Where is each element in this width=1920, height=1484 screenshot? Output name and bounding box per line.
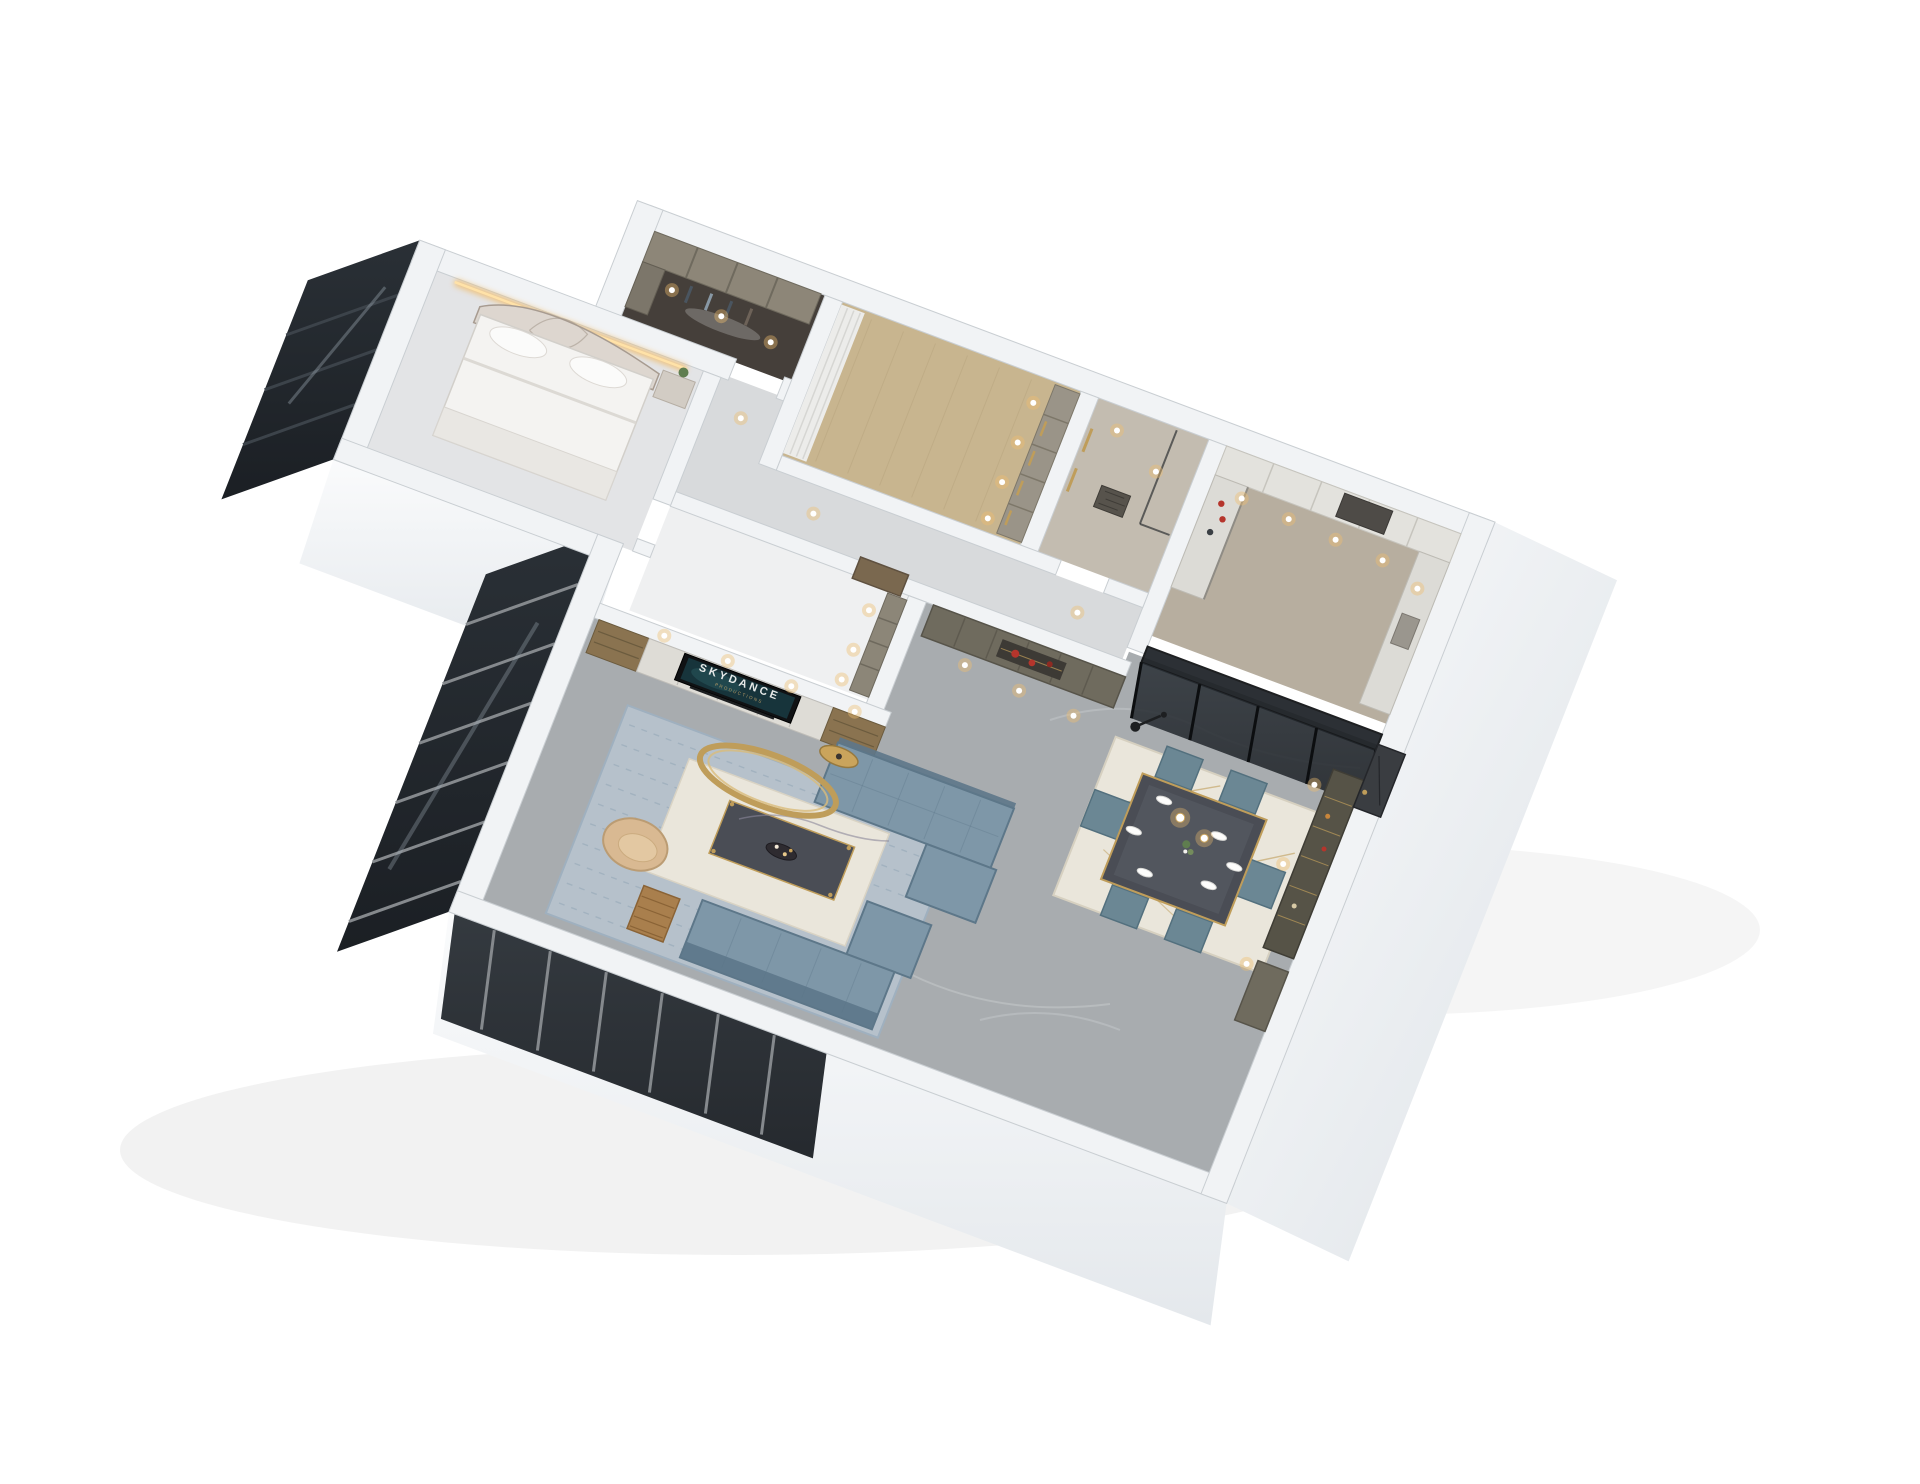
ceiling-spotlight xyxy=(1015,440,1021,446)
ceiling-spotlight xyxy=(1030,400,1036,406)
ceiling-spotlight xyxy=(839,677,845,683)
ceiling-spotlight xyxy=(852,709,858,715)
wine-bottle xyxy=(1207,529,1213,535)
ceiling-spotlight xyxy=(1380,557,1386,563)
ceiling-spotlight xyxy=(718,313,724,319)
shelf-decor xyxy=(1322,847,1327,852)
gold-leg xyxy=(730,802,734,806)
floor-lamp-shade xyxy=(1130,722,1140,732)
plant xyxy=(679,368,689,378)
ceiling-spotlight xyxy=(768,339,774,345)
side-table-decor xyxy=(836,754,842,760)
red-decor xyxy=(1047,661,1053,667)
gold-leg xyxy=(847,846,851,850)
ceiling-spotlight xyxy=(661,633,667,639)
wine-bottle xyxy=(1219,516,1225,522)
centerpiece-vase xyxy=(1183,850,1187,854)
gold-leg xyxy=(711,849,715,853)
ceiling-spotlight xyxy=(1280,861,1286,867)
ceiling-spotlight xyxy=(1074,610,1080,616)
ceiling-spotlight xyxy=(1286,516,1292,522)
red-decor xyxy=(1011,650,1019,658)
gold-leg xyxy=(828,893,832,897)
door-panel xyxy=(1379,756,1380,806)
candle xyxy=(775,845,779,849)
ceiling-spotlight xyxy=(985,515,991,521)
candle xyxy=(783,852,787,856)
ceiling-spotlight xyxy=(1114,428,1120,434)
floorplan-render: SKYDANCEPRODUCTIONS xyxy=(0,0,1920,1484)
red-decor xyxy=(1029,660,1036,667)
centerpiece-foliage xyxy=(1182,840,1190,848)
decor-item xyxy=(789,849,793,853)
wall-bedroom-east-b xyxy=(633,539,656,558)
ceiling-spotlight xyxy=(725,658,731,664)
scene-svg: SKYDANCEPRODUCTIONS xyxy=(0,0,1920,1484)
shelf-decor xyxy=(1292,904,1297,909)
pendant-lamp xyxy=(1200,834,1208,842)
ceiling-spotlight xyxy=(1311,782,1317,788)
ceiling-spotlight xyxy=(810,511,816,517)
ceiling-spotlight xyxy=(669,287,675,293)
ceiling-spotlight xyxy=(1414,586,1420,592)
ceiling-spotlight xyxy=(1239,496,1245,502)
floor-lamp-base xyxy=(1161,712,1167,718)
ceiling-spotlight xyxy=(1071,713,1077,719)
door-handle xyxy=(1362,790,1367,795)
ceiling-spotlight xyxy=(1333,537,1339,543)
ceiling-spotlight xyxy=(866,607,872,613)
pendant-lamp xyxy=(1176,813,1185,822)
ceiling-spotlight xyxy=(999,479,1005,485)
ceiling-spotlight xyxy=(1153,469,1159,475)
ceiling-spotlight xyxy=(1016,688,1022,694)
ceiling-spotlight xyxy=(738,415,744,421)
ceiling-spotlight xyxy=(850,647,856,653)
wine-bottle xyxy=(1218,501,1224,507)
ceiling-spotlight xyxy=(962,662,968,668)
shelf-decor xyxy=(1325,814,1330,819)
ceiling-spotlight xyxy=(1244,961,1250,967)
centerpiece-foliage xyxy=(1188,849,1194,855)
ceiling-spotlight xyxy=(788,683,794,689)
